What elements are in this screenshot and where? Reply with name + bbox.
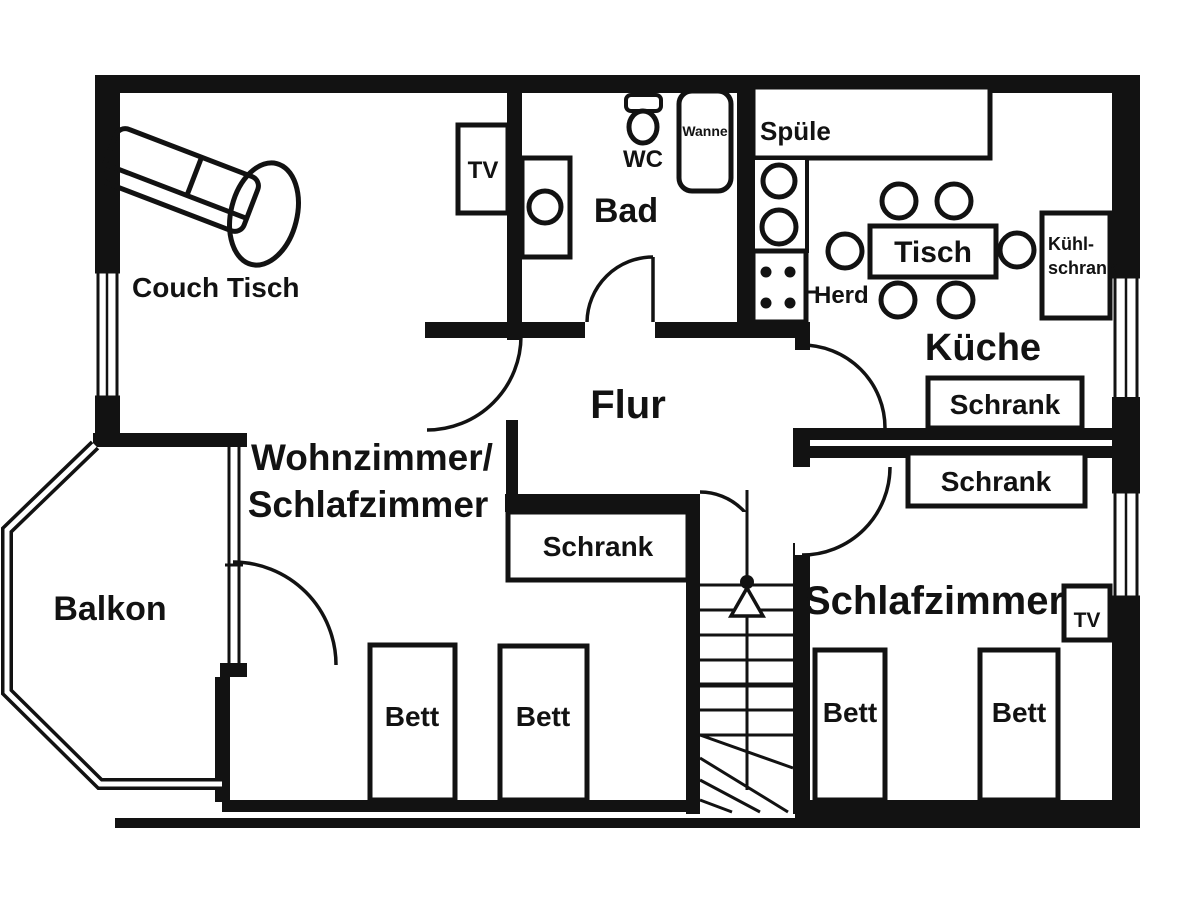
kitchen-sink-label: Spüle xyxy=(760,116,831,146)
chair xyxy=(881,283,915,317)
balcony-door-sill xyxy=(220,663,247,677)
wall-south-inner xyxy=(222,800,700,812)
balcony-door-window xyxy=(225,447,243,663)
chair xyxy=(882,184,916,218)
couch xyxy=(99,126,262,235)
wardrobe-kitchen-label: Schrank xyxy=(950,389,1061,420)
balcony-door-arc xyxy=(233,562,336,665)
wardrobe-living-label: Schrank xyxy=(543,531,654,562)
living-room-label-1: Wohnzimmer/ xyxy=(251,437,493,478)
wall-west-upper xyxy=(95,82,120,272)
kitchen-sink-unit xyxy=(753,158,807,251)
stove-unit xyxy=(753,251,806,322)
bed-bedroom-1-label: Bett xyxy=(823,697,877,728)
kitchen-door-arc xyxy=(802,345,885,428)
bed-bedroom-2-label: Bett xyxy=(992,697,1046,728)
bathroom: WC Wanne Bad xyxy=(522,91,731,257)
tv-living-label: TV xyxy=(468,157,499,184)
chair xyxy=(937,184,971,218)
bedroom-door-post xyxy=(793,428,810,467)
chair xyxy=(939,283,973,317)
wardrobe-bedroom-label: Schrank xyxy=(941,466,1052,497)
living-room-label-2: Schlafzimmer xyxy=(248,484,489,525)
living-room-door-arc xyxy=(427,336,521,430)
window-east-kitchen xyxy=(1112,277,1140,397)
tv-bedroom-label: TV xyxy=(1074,609,1101,632)
wall-east-lower xyxy=(1112,597,1140,828)
bed-living-1-label: Bett xyxy=(385,701,439,732)
wall-south-outer xyxy=(115,818,1140,828)
floor-plan-drawing: Couch Tisch TV Wohnzimmer/ Schlafzimmer … xyxy=(0,0,1200,900)
kitchen: Spüle Herd Tisch Kühl- schrank Küche Sch… xyxy=(753,87,1118,428)
bathroom-label: Bad xyxy=(594,192,658,230)
fridge-label-1: Kühl- xyxy=(1048,234,1094,254)
bathtub-label: Wanne xyxy=(682,123,728,139)
bedroom-label: Schlafzimmer xyxy=(804,579,1064,623)
floor-plan-page: Couch Tisch TV Wohnzimmer/ Schlafzimmer … xyxy=(0,0,1200,900)
window-west xyxy=(95,272,120,397)
bathtub xyxy=(679,91,731,191)
wall-hall-north-left xyxy=(425,322,585,338)
chair xyxy=(1000,233,1034,267)
window-east-bedroom xyxy=(1112,492,1140,597)
kitchen-label: Küche xyxy=(925,327,1041,369)
balcony-label: Balkon xyxy=(53,590,166,628)
staircase xyxy=(700,490,793,816)
bed-living-2-label: Bett xyxy=(516,701,570,732)
dining-table-label: Tisch xyxy=(894,236,972,269)
chair xyxy=(828,234,862,268)
toilet-bowl xyxy=(629,111,657,143)
wall-hall-living xyxy=(506,420,518,504)
fridge-label-2: schrank xyxy=(1048,258,1118,278)
hallway-label: Flur xyxy=(590,383,666,427)
wall-hall-south xyxy=(505,494,700,512)
wall-southwest xyxy=(93,433,247,447)
bedroom-door-arc xyxy=(802,467,890,555)
bedroom: Schrank Schlafzimmer TV Bett Bett xyxy=(804,453,1110,800)
bathroom-door-arc xyxy=(587,257,653,322)
wall-east-middle xyxy=(1112,397,1140,492)
coffee-table xyxy=(219,156,308,273)
wc-label: WC xyxy=(623,146,663,173)
stove-label: Herd xyxy=(814,282,869,309)
couch-table-label: Couch Tisch xyxy=(132,272,300,303)
wall-east-upper xyxy=(1112,75,1140,277)
